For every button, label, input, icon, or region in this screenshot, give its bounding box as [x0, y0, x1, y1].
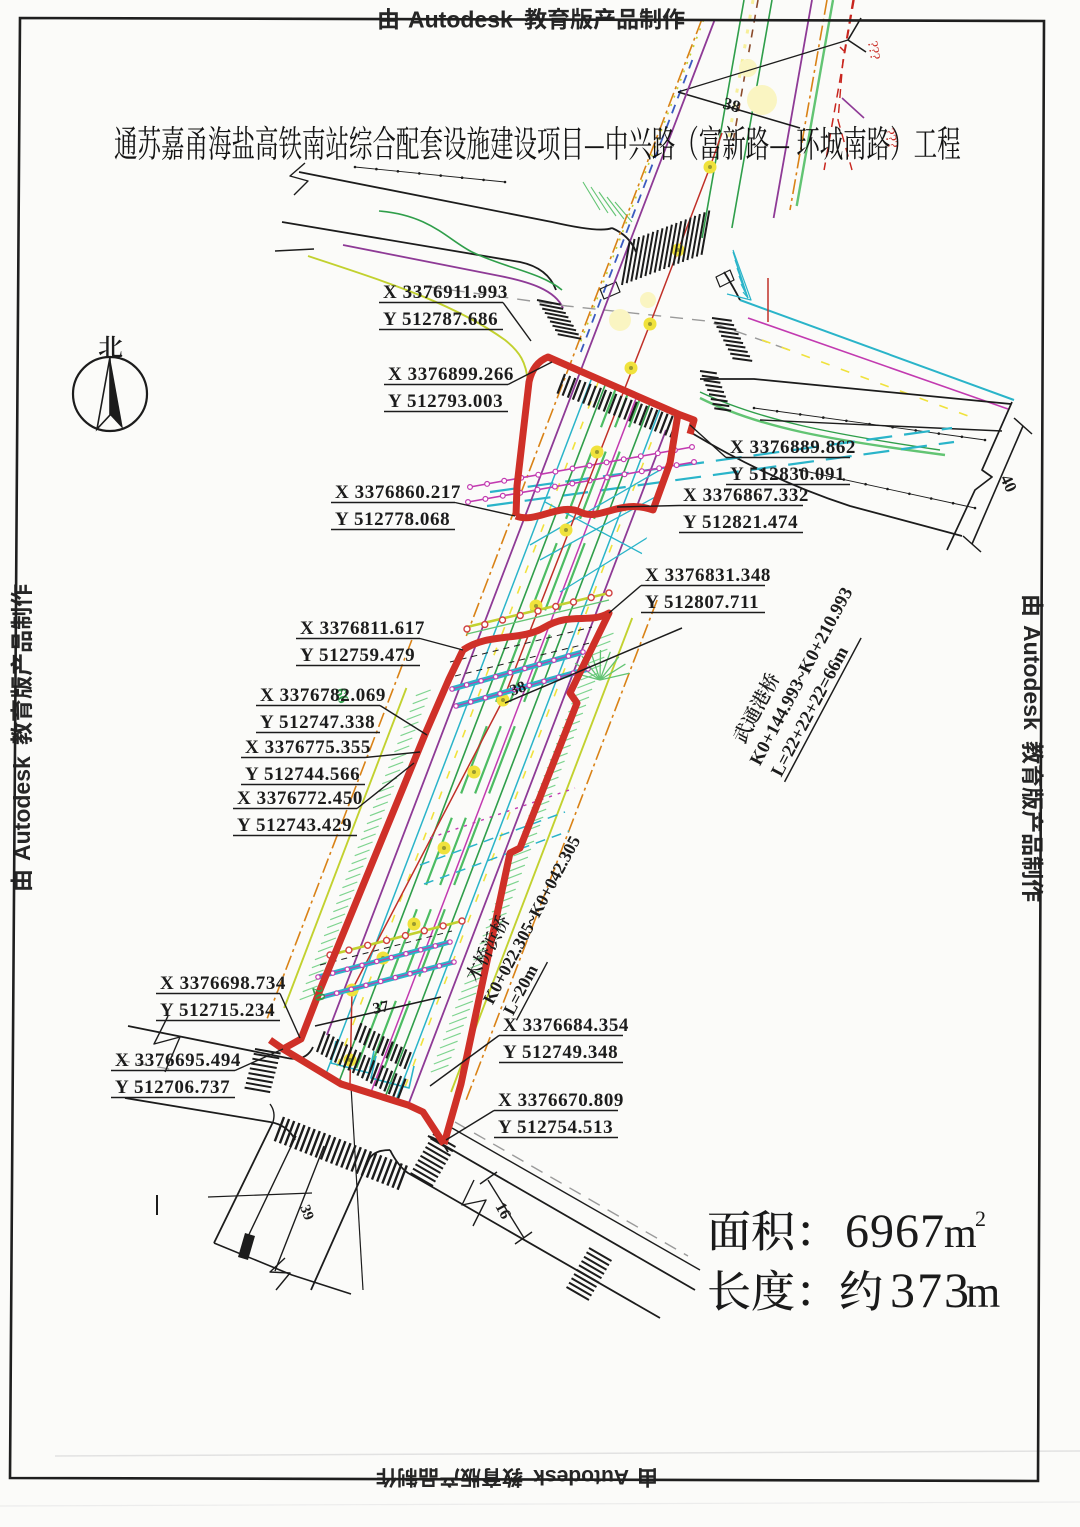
svg-text:Y 512743.429: Y 512743.429 — [237, 815, 352, 836]
svg-text:Y 512787.686: Y 512787.686 — [383, 309, 498, 330]
svg-text:m: m — [944, 1211, 977, 1257]
svg-text:Y 512749.348: Y 512749.348 — [503, 1042, 618, 1063]
svg-text:Y 512830.091: Y 512830.091 — [730, 464, 845, 485]
svg-text:X 3376899.266: X 3376899.266 — [388, 364, 514, 385]
svg-text:X 3376782.069: X 3376782.069 — [260, 685, 386, 706]
svg-text:X 3376698.734: X 3376698.734 — [160, 973, 286, 994]
svg-text:Autodesk: Autodesk — [9, 756, 35, 861]
svg-text:X 3376867.332: X 3376867.332 — [683, 485, 809, 506]
svg-text:X 3376911.993: X 3376911.993 — [383, 282, 508, 303]
svg-text:373: 373 — [890, 1262, 971, 1318]
svg-text:X 3376889.862: X 3376889.862 — [730, 437, 856, 458]
svg-text:X 3376860.217: X 3376860.217 — [335, 482, 461, 503]
svg-text:Y 512807.711: Y 512807.711 — [645, 592, 759, 613]
svg-text:X 3376772.450: X 3376772.450 — [237, 788, 363, 809]
svg-text:Y 512759.479: Y 512759.479 — [300, 645, 415, 666]
svg-text:Y 512744.566: Y 512744.566 — [245, 764, 360, 785]
svg-text:6967: 6967 — [845, 1205, 945, 1258]
svg-text:Autodesk: Autodesk — [533, 1465, 629, 1488]
svg-text:X 3376684.354: X 3376684.354 — [503, 1015, 629, 1036]
svg-text:Y 512778.068: Y 512778.068 — [335, 509, 450, 530]
svg-text:X 3376670.809: X 3376670.809 — [498, 1090, 624, 1111]
svg-text:X 3376775.355: X 3376775.355 — [245, 737, 371, 758]
svg-text:X 3376811.617: X 3376811.617 — [300, 618, 425, 639]
svg-text:Y 512821.474: Y 512821.474 — [683, 512, 798, 533]
svg-text:Y 512793.003: Y 512793.003 — [388, 391, 503, 412]
svg-text:Y 512754.513: Y 512754.513 — [498, 1117, 613, 1138]
svg-text:Y 512747.338: Y 512747.338 — [260, 712, 375, 733]
svg-text:???: ??? — [864, 40, 882, 61]
svg-text:2: 2 — [975, 1206, 986, 1231]
svg-text:X 3376695.494: X 3376695.494 — [115, 1050, 241, 1071]
svg-text:Y 512715.234: Y 512715.234 — [160, 1000, 275, 1021]
svg-text:m: m — [966, 1268, 1000, 1317]
svg-text:X 3376831.348: X 3376831.348 — [645, 565, 771, 586]
svg-text:Y 512706.737: Y 512706.737 — [115, 1077, 230, 1098]
